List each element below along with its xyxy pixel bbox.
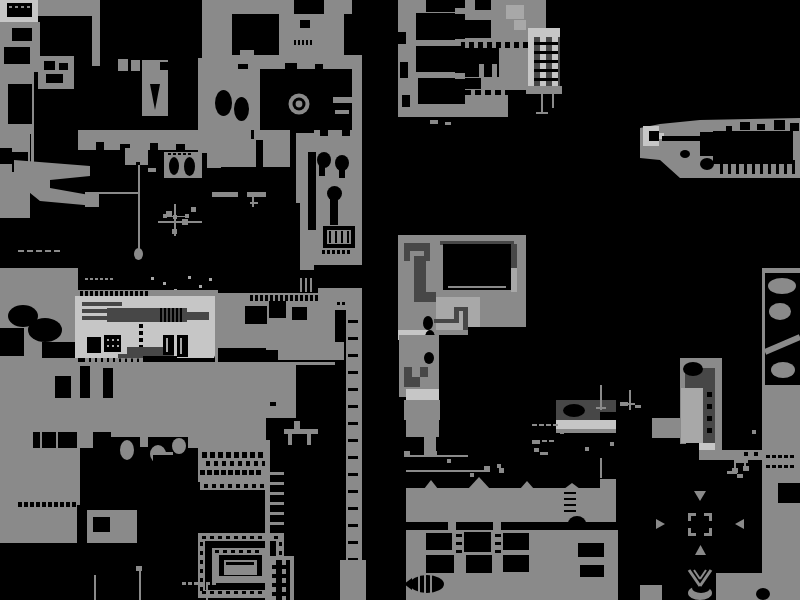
game-map-canvas — [0, 0, 800, 600]
map-viewport — [0, 0, 800, 600]
